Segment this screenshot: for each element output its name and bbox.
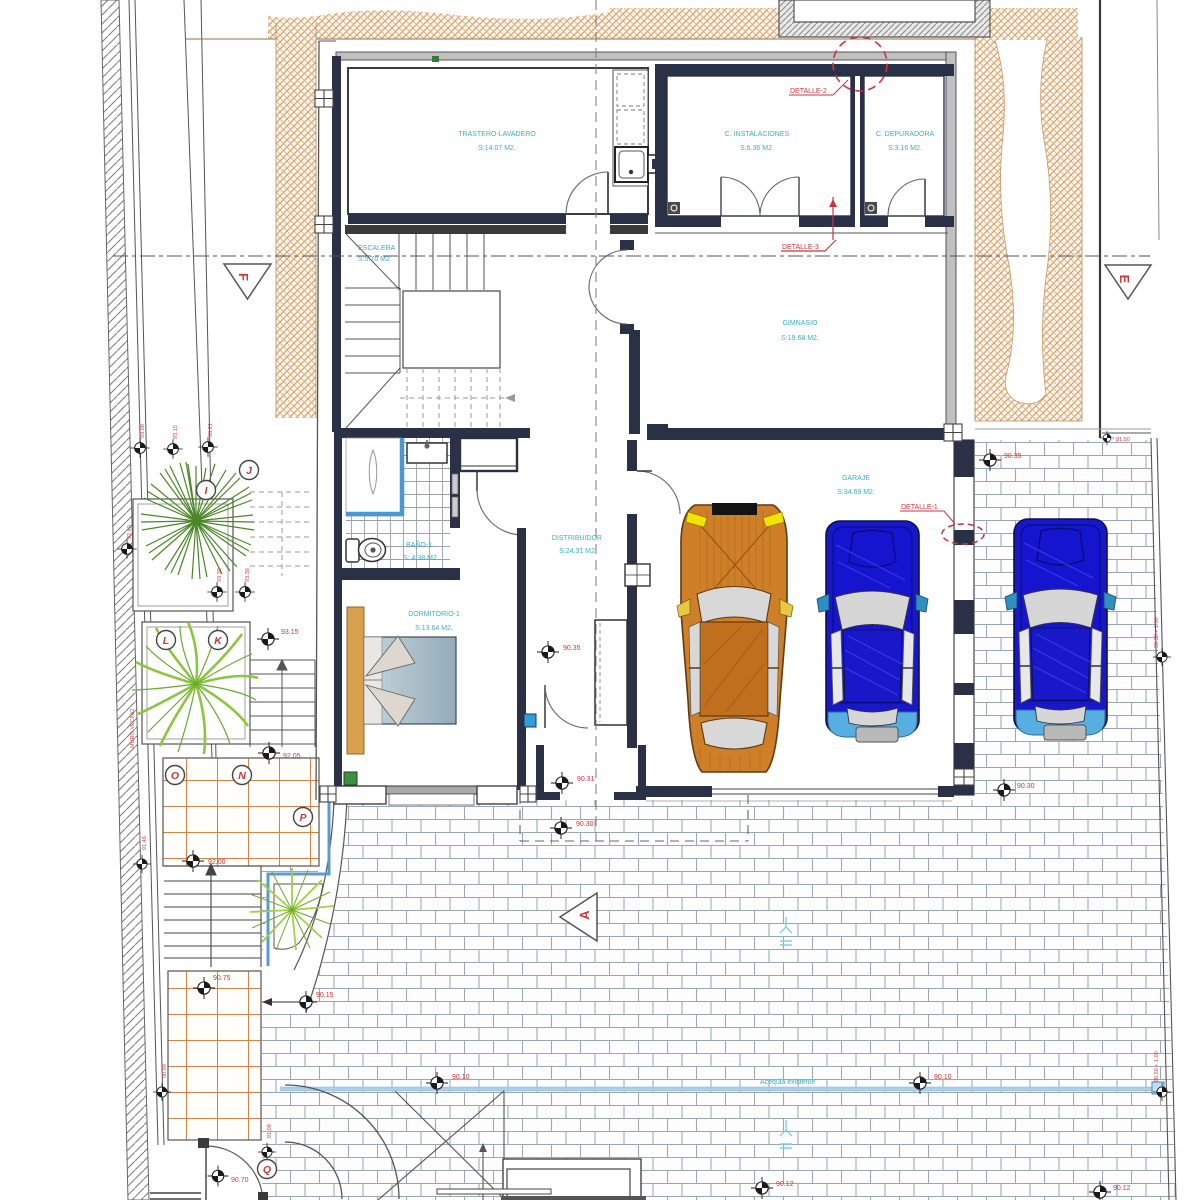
svg-text:S:3.16 M2.: S:3.16 M2.	[888, 145, 922, 152]
svg-text:90.30: 90.30	[1017, 783, 1035, 790]
svg-text:92.40: 92.40	[127, 525, 133, 539]
svg-text:C. DEPURADORA: C. DEPURADORA	[876, 131, 935, 138]
svg-text:92.05: 92.05	[283, 753, 301, 760]
svg-text:90.10: 90.10	[452, 1074, 470, 1081]
svg-text:93.08: 93.08	[140, 424, 146, 438]
svg-text:90.10: 90.10	[934, 1074, 952, 1081]
svg-text:93.38: 93.38	[245, 568, 251, 582]
svg-text:91.08: 91.08	[267, 1124, 273, 1138]
svg-text:90.35: 90.35	[563, 645, 581, 652]
svg-text:S:13.64 M2.: S:13.64 M2.	[415, 625, 453, 632]
svg-text:90.15: 90.15	[316, 992, 334, 999]
svg-text:DORMITORIO-1: DORMITORIO-1	[408, 611, 460, 618]
svg-text:DETALLE-1: DETALLE-1	[901, 504, 938, 511]
svg-text:93.30: 93.30	[217, 568, 223, 582]
svg-text:Acequia existente: Acequia existente	[760, 1079, 815, 1086]
svg-text:E: E	[1117, 275, 1132, 284]
svg-text:90.31: 90.31	[577, 776, 595, 783]
svg-text:90.12: 90.12	[1113, 1185, 1131, 1192]
svg-text:N: N	[238, 770, 246, 782]
svg-text:90.35: 90.35	[1004, 453, 1022, 460]
svg-text:90.12: 90.12	[776, 1181, 794, 1188]
svg-text:93.15: 93.15	[173, 425, 179, 439]
svg-text:S:5.70 M2.: S:5.70 M2.	[358, 256, 392, 263]
svg-text:90.75: 90.75	[213, 975, 231, 982]
svg-text:DETALLE-3: DETALLE-3	[782, 244, 819, 251]
svg-text:P: P	[299, 812, 307, 824]
svg-text:O: O	[171, 770, 179, 782]
svg-text:DISTRIBUIDOR: DISTRIBUIDOR	[552, 535, 602, 542]
svg-text:90.98: 90.98	[162, 1064, 168, 1078]
svg-text:C. INSTALACIONES: C. INSTALACIONES	[725, 131, 790, 138]
svg-text:91.46: 91.46	[142, 836, 148, 850]
svg-text:S:24.31 M2: S:24.31 M2	[559, 548, 595, 555]
svg-text:F: F	[236, 273, 251, 281]
svg-text:90.70: 90.70	[231, 1177, 249, 1184]
svg-text:S: 4.38 M2.: S: 4.38 M2.	[403, 555, 439, 562]
svg-text:S:19.68 M2.: S:19.68 M2.	[781, 335, 819, 342]
svg-text:Q: Q	[263, 1164, 271, 1176]
svg-text:S:14.07 M2.: S:14.07 M2.	[478, 145, 516, 152]
svg-text:92.00: 92.00	[208, 859, 226, 866]
svg-text:MURO VECINO: MURO VECINO	[130, 708, 136, 748]
svg-text:90.50 + 1.00: 90.50 + 1.00	[1154, 617, 1160, 648]
svg-text:93.15: 93.15	[281, 629, 299, 636]
svg-text:90.50 + 1.00: 90.50 + 1.00	[1154, 1051, 1160, 1082]
svg-text:DETALLE-2: DETALLE-2	[790, 88, 827, 95]
svg-text:S:34.69 M2.: S:34.69 M2.	[837, 489, 875, 496]
svg-text:91.50: 91.50	[1116, 437, 1130, 443]
svg-text:ESCALERA: ESCALERA	[358, 245, 396, 252]
svg-text:L: L	[163, 635, 169, 647]
svg-text:S:6.36 M2.: S:6.36 M2.	[740, 145, 774, 152]
svg-text:90.30: 90.30	[576, 821, 594, 828]
svg-text:GARAJE: GARAJE	[842, 475, 870, 482]
svg-text:GIMNASIO: GIMNASIO	[782, 320, 818, 327]
svg-text:BAÑO-1: BAÑO-1	[406, 540, 432, 549]
svg-text:93.21: 93.21	[208, 423, 214, 437]
svg-text:A: A	[577, 910, 592, 920]
svg-text:TRASTERO-LAVADERO: TRASTERO-LAVADERO	[458, 131, 536, 138]
